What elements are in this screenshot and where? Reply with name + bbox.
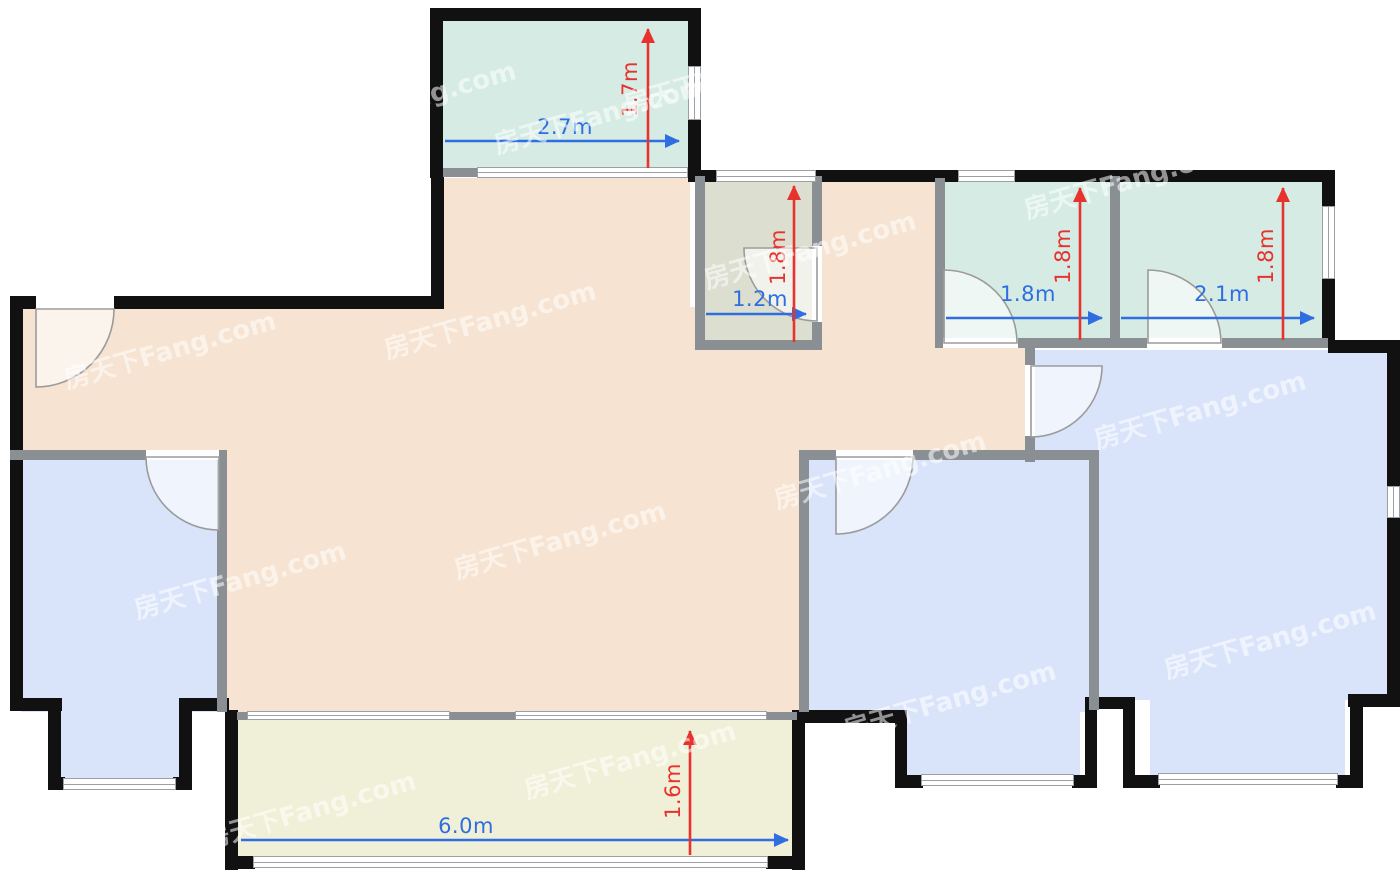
window — [958, 170, 1015, 182]
door-opening — [836, 450, 913, 460]
room-bedroom-middle-bay — [905, 712, 1080, 776]
door-opening — [146, 450, 219, 460]
interior-wall-segment — [911, 450, 1099, 460]
window — [477, 167, 688, 178]
room-bedroom-right — [1033, 350, 1389, 462]
interior-wall-segment — [799, 450, 809, 712]
wall-segment — [431, 170, 444, 309]
floor-plan-canvas: 2.7m 1.7m 1.2m 1.8m 1.8m 1.8m 2.1m 1.8m … — [0, 0, 1400, 879]
dim-label-bottom-balcony-width: 6.0m — [438, 814, 494, 838]
interior-wall-segment — [10, 450, 148, 460]
interior-wall-segment — [1110, 176, 1120, 346]
room-bottom-balcony — [237, 718, 793, 858]
wall-segment — [1135, 775, 1160, 788]
window — [63, 778, 176, 790]
window — [716, 170, 816, 182]
interior-wall-segment — [1089, 452, 1099, 710]
wall-segment — [225, 710, 238, 870]
wall-segment — [225, 856, 255, 869]
window — [1158, 773, 1338, 785]
door-opening — [943, 338, 1018, 348]
window — [1322, 206, 1335, 279]
room-bedroom-left — [21, 458, 219, 712]
window — [921, 774, 1074, 786]
window — [515, 711, 767, 720]
window — [688, 66, 701, 120]
wall-segment — [10, 296, 36, 309]
room-bedroom-right — [1097, 460, 1389, 700]
room-small-2 — [1118, 180, 1324, 340]
room-living — [21, 307, 701, 454]
door-opening — [1147, 338, 1222, 348]
dim-label-room2-width: 2.1m — [1194, 282, 1250, 306]
wall-segment — [792, 710, 805, 870]
wall-segment — [430, 8, 443, 178]
wall-segment — [1336, 775, 1363, 788]
interior-wall-segment — [800, 450, 838, 460]
dim-label-bathroom-width: 1.2m — [732, 287, 788, 311]
dim-label-bathroom-height: 1.8m — [766, 229, 790, 285]
wall-segment — [10, 296, 23, 711]
room-bedroom-left-bay — [59, 712, 181, 780]
interior-wall-segment — [812, 176, 822, 248]
room-living-hallway — [820, 180, 940, 350]
dim-label-bottom-balcony-height: 1.6m — [661, 763, 685, 819]
room-living — [443, 178, 690, 309]
watermark-text: 房天下Fang.com — [939, 816, 1160, 879]
dim-label-room2-height: 1.8m — [1254, 228, 1278, 284]
wall-segment — [1013, 170, 1324, 182]
wall-segment — [1387, 340, 1400, 488]
window — [1387, 486, 1400, 518]
room-living-hallway — [700, 348, 1030, 456]
room-bathroom — [703, 180, 814, 342]
dim-label-room1-height: 1.8m — [1051, 228, 1075, 284]
interior-wall-segment — [1222, 338, 1328, 348]
door-opening — [36, 296, 114, 309]
room-bedroom-middle — [807, 460, 1091, 712]
wall-segment — [1322, 170, 1335, 208]
interior-wall-segment — [1017, 338, 1147, 348]
interior-wall-segment — [217, 450, 227, 712]
wall-segment — [1123, 698, 1135, 788]
wall-segment — [766, 856, 805, 869]
room-living — [226, 452, 802, 714]
interior-wall-segment — [1025, 345, 1035, 367]
door-opening — [812, 246, 822, 322]
interior-wall-segment — [695, 340, 822, 350]
window — [247, 711, 450, 720]
wall-segment — [1350, 694, 1363, 788]
interior-wall-segment — [935, 178, 945, 346]
room-top-balcony — [441, 19, 690, 170]
dim-label-top-balcony-width: 2.7m — [537, 115, 593, 139]
wall-segment — [688, 118, 701, 178]
interior-wall-segment — [443, 168, 479, 177]
interior-wall-segment — [1025, 436, 1035, 462]
wall-segment — [688, 8, 701, 68]
door-opening — [1025, 365, 1035, 436]
wall-segment — [1387, 516, 1400, 702]
wall-segment — [805, 710, 907, 723]
window — [253, 856, 768, 868]
dim-label-top-balcony-height: 1.7m — [618, 61, 642, 117]
dim-label-room1-width: 1.8m — [1000, 282, 1056, 306]
wall-segment — [430, 8, 701, 21]
wall-segment — [114, 296, 444, 309]
room-bedroom-right-bay — [1150, 694, 1345, 776]
room-small-1 — [943, 180, 1112, 340]
wall-segment — [1072, 775, 1088, 788]
interior-wall-segment — [695, 176, 705, 350]
watermark-text: 房天下Fang.com — [1239, 791, 1400, 879]
wall-segment — [1322, 277, 1335, 346]
